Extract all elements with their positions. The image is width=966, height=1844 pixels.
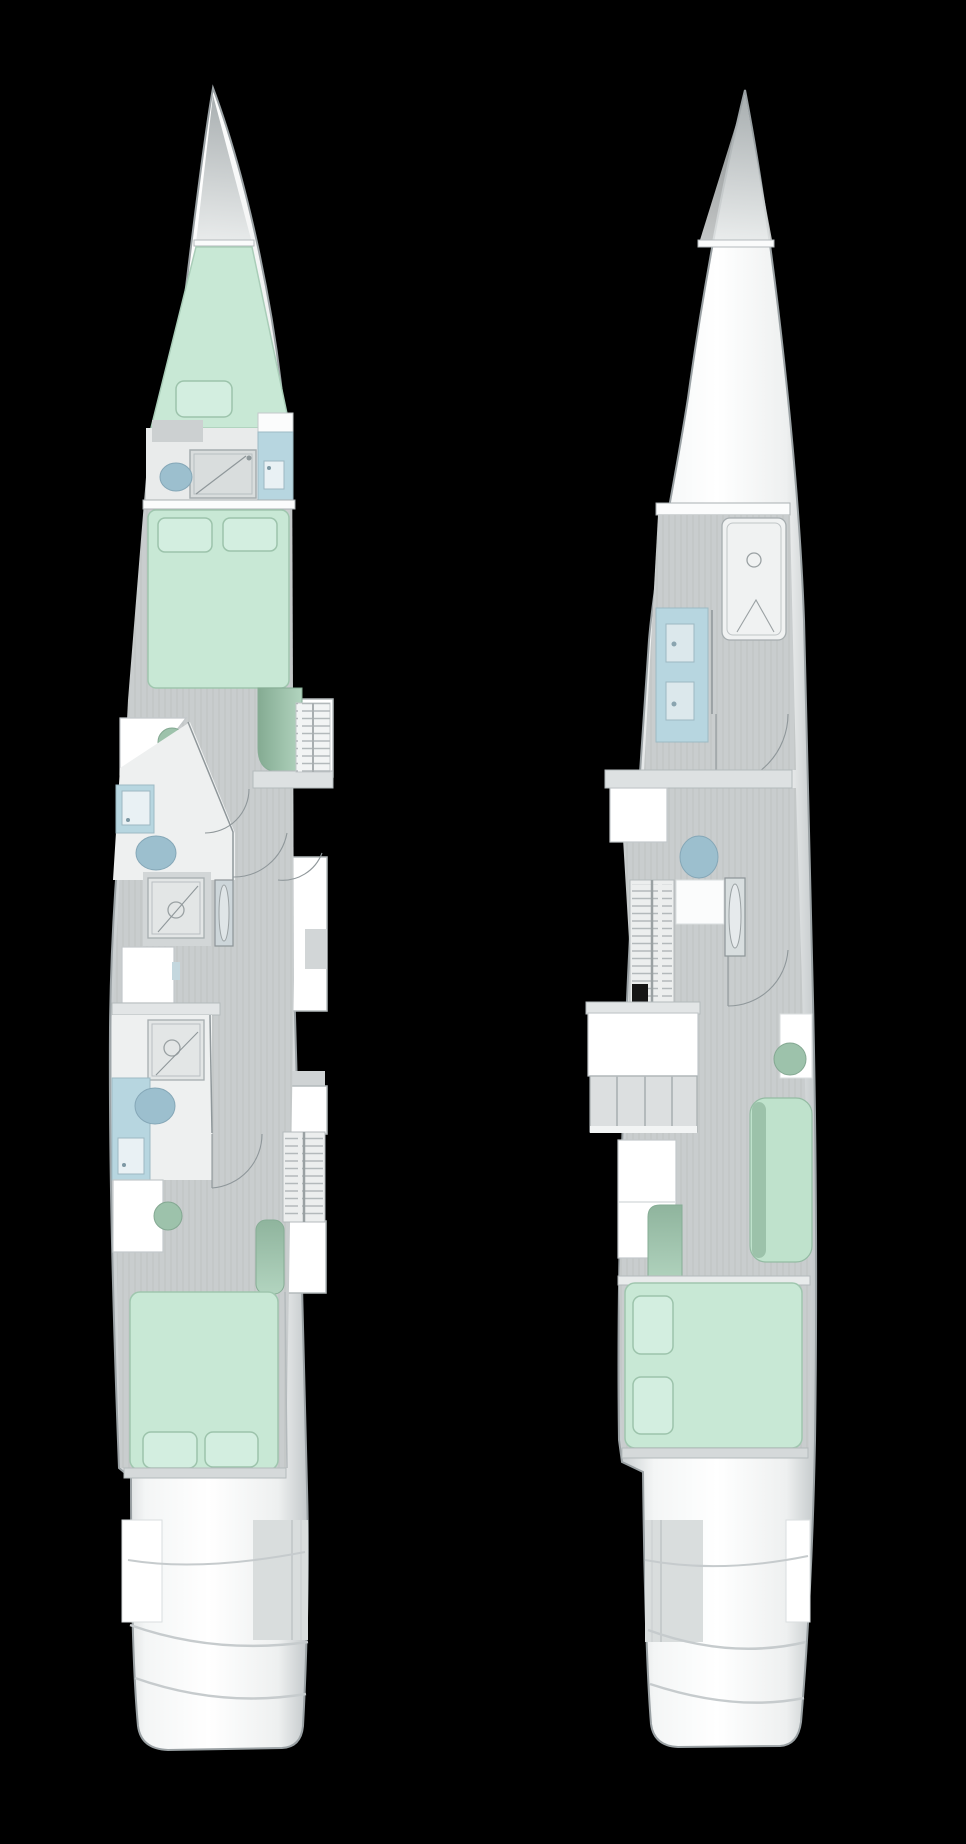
forward-toilet bbox=[160, 463, 192, 491]
mid-bulkhead-band bbox=[112, 1003, 220, 1015]
stb-landing bbox=[676, 880, 724, 924]
forward-head-shelf bbox=[258, 413, 293, 432]
forward-shower-drain bbox=[247, 456, 252, 461]
storage-cabinet bbox=[122, 947, 174, 1003]
stb-chaise-back bbox=[752, 1102, 766, 1258]
stb-bed-headboard bbox=[648, 1205, 682, 1285]
stb-toilet bbox=[680, 836, 718, 878]
aft-vanity-sink bbox=[118, 1138, 144, 1174]
mid-shower-pan bbox=[148, 878, 204, 938]
bow-bulkhead bbox=[194, 240, 254, 246]
stb-stool bbox=[774, 1043, 806, 1075]
forward-bed-pillow-left bbox=[158, 518, 212, 552]
forward-vanity-sink bbox=[264, 461, 284, 489]
hull-port bbox=[110, 88, 333, 1750]
stb-forward-desk bbox=[610, 788, 667, 842]
stb-wardrobe-mirror bbox=[729, 884, 741, 948]
stb-bed-pillow-bottom bbox=[633, 1377, 673, 1434]
stb-vanity-faucet-fwd bbox=[672, 642, 677, 647]
stb-bed-pillow-top bbox=[633, 1296, 673, 1354]
floor-plan-canvas bbox=[0, 0, 966, 1844]
mid-toilet bbox=[136, 836, 176, 870]
storage-cabinet-bump bbox=[172, 962, 180, 980]
aft-bed-pillow-left bbox=[143, 1432, 197, 1468]
forward-companionway-stairs bbox=[296, 703, 330, 772]
mid-vanity-faucet bbox=[126, 818, 130, 822]
stb-galley-cabinet bbox=[588, 1013, 698, 1076]
stb-vanity-sink-fwd bbox=[666, 624, 694, 662]
deck-plan-drawing bbox=[0, 0, 966, 1844]
forward-vanity-faucet bbox=[267, 466, 271, 470]
aft-desk-stool bbox=[154, 1202, 182, 1230]
forward-chaise bbox=[258, 688, 302, 772]
stb-bow-locker-shade bbox=[700, 95, 772, 240]
stb-ladder-stairs bbox=[630, 880, 674, 1002]
forward-bed-pillow-right bbox=[223, 518, 277, 551]
stb-vanity-faucet-aft bbox=[672, 702, 677, 707]
aft-bed-pillow-right bbox=[205, 1432, 258, 1467]
forward-head-step bbox=[152, 420, 203, 442]
v-berth-pillow bbox=[176, 381, 232, 417]
mid-mirror bbox=[219, 885, 229, 941]
aft-chaise bbox=[256, 1220, 284, 1294]
forward-ledge bbox=[253, 771, 333, 788]
aft-vanity-faucet bbox=[122, 1163, 126, 1167]
stb-galley-band bbox=[586, 1002, 700, 1014]
aft-toilet bbox=[135, 1088, 175, 1124]
stb-companionway-stairs bbox=[590, 1076, 697, 1133]
aft-ladder-stairs bbox=[283, 1132, 325, 1222]
stb-forward-bulkhead bbox=[656, 503, 790, 515]
stb-vanity-sink-aft bbox=[666, 682, 694, 720]
forward-bulkhead bbox=[143, 500, 295, 509]
hull-starboard bbox=[586, 90, 816, 1747]
stb-ledge-band bbox=[605, 770, 792, 788]
aft-shower-pan bbox=[148, 1020, 204, 1080]
stb-shower-pan bbox=[722, 518, 786, 640]
stb-bow-bulkhead bbox=[698, 240, 774, 247]
port-middeck-notch bbox=[305, 929, 327, 969]
